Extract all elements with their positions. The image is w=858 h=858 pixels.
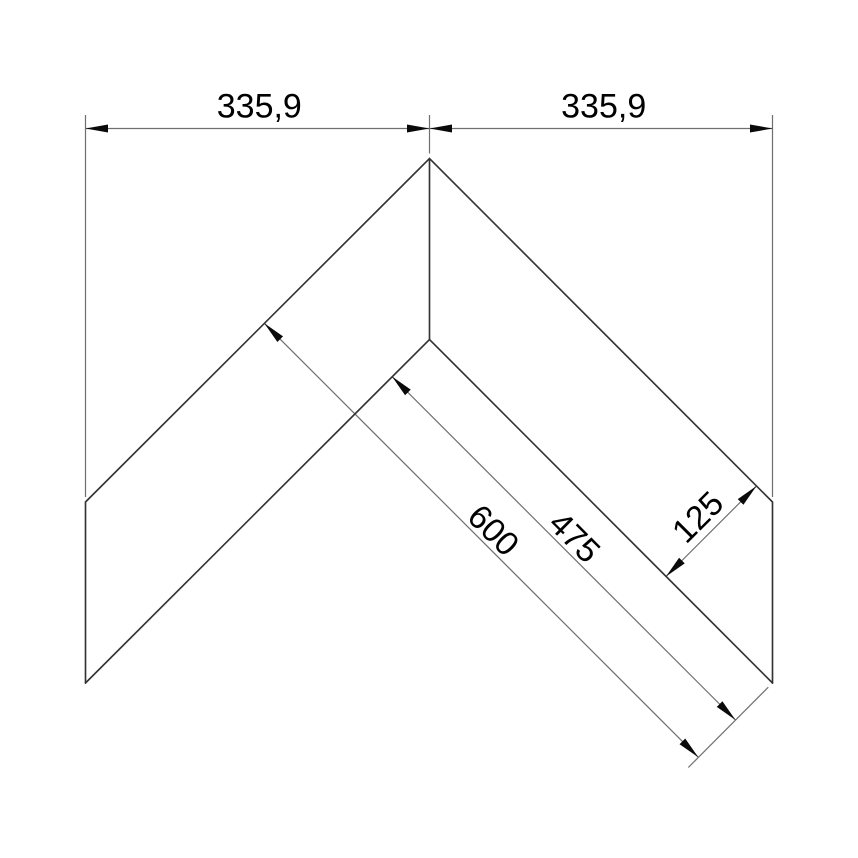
svg-text:335,9: 335,9 bbox=[561, 87, 646, 125]
svg-text:335,9: 335,9 bbox=[217, 87, 302, 125]
